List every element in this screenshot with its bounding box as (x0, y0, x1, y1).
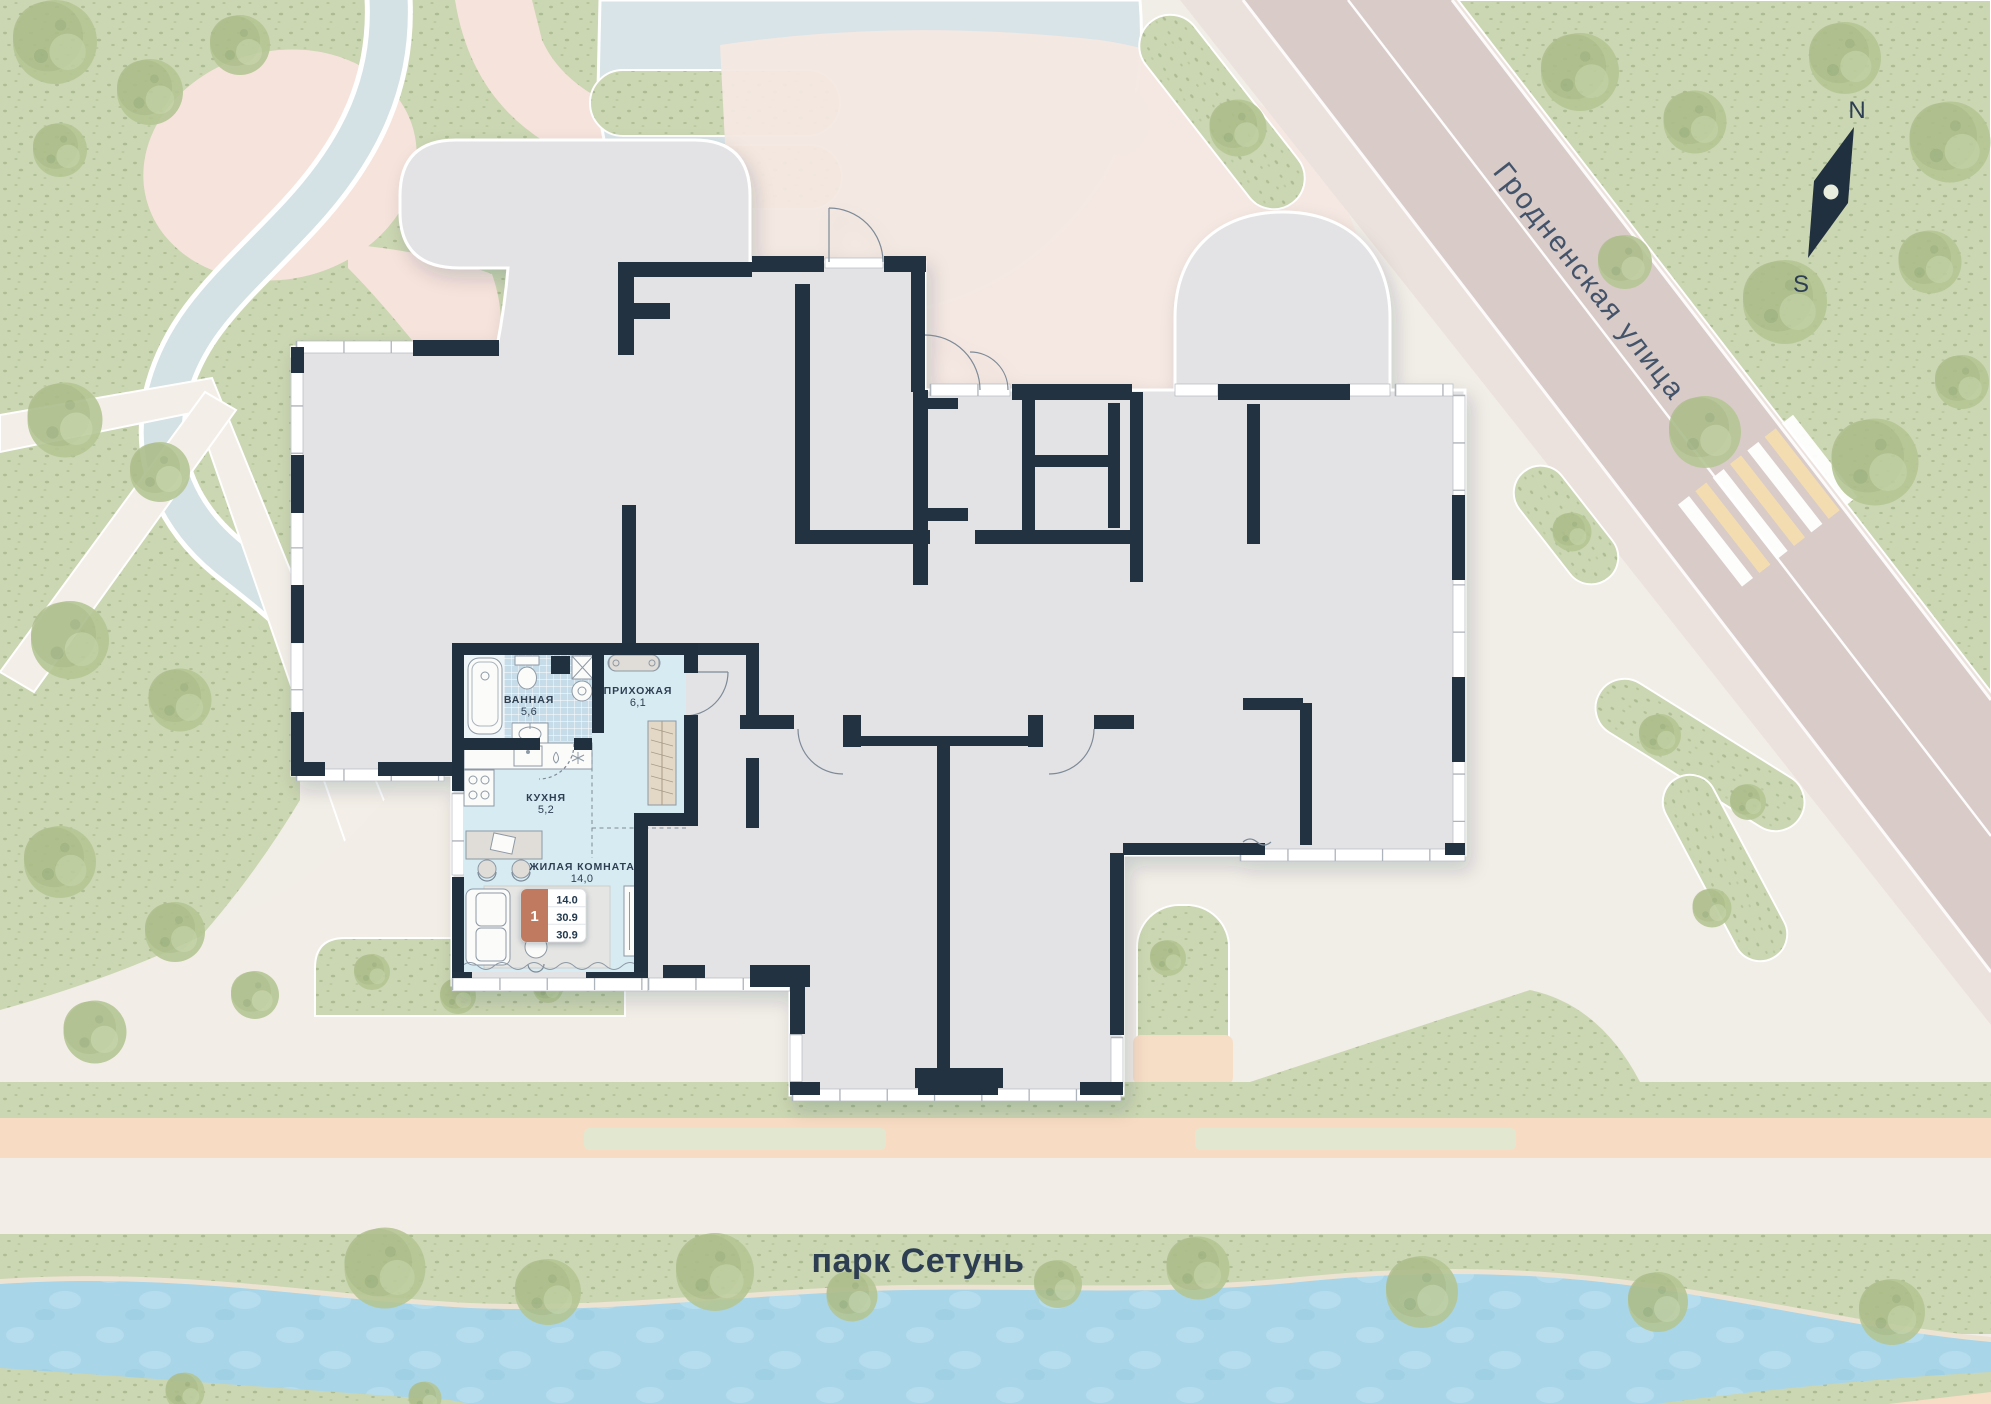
washer-icon (572, 656, 593, 701)
bike-lane (0, 1118, 1991, 1158)
bench-icon (608, 655, 660, 671)
room-label-hallway: ПРИХОЖАЯ (604, 685, 673, 697)
site-plan: ВАННАЯ 5,6 ПРИХОЖАЯ 6,1 КУХНЯ 5,2 ЖИЛАЯ … (0, 0, 1991, 1404)
stove-icon (464, 770, 494, 806)
toilet-icon (515, 656, 539, 689)
compass-south-label: S (1793, 271, 1809, 298)
room-area-bathroom: 5,6 (521, 706, 537, 718)
room-area-living: 14,0 (571, 873, 594, 885)
bike-lane-green-1 (584, 1128, 886, 1150)
badge-living-area: 14.0 (556, 895, 577, 907)
room-label-bathroom: ВАННАЯ (504, 694, 554, 706)
badge-total-area: 30.9 (556, 930, 577, 942)
shaft (551, 656, 570, 674)
room-label-kitchen: КУХНЯ (526, 792, 566, 804)
peach-patch (1133, 1035, 1233, 1085)
wardrobe-icon (648, 721, 676, 805)
badge-rooms-count: 1 (530, 908, 538, 925)
sofa-icon (466, 889, 510, 965)
site-plan-canvas: ВАННАЯ 5,6 ПРИХОЖАЯ 6,1 КУХНЯ 5,2 ЖИЛАЯ … (0, 0, 1991, 1404)
room-label-living: ЖИЛАЯ КОМНАТА (528, 861, 634, 873)
area-badge[interactable]: 1 14.0 30.9 30.9 (521, 889, 586, 942)
room-area-kitchen: 5,2 (538, 804, 554, 816)
badge-area-2: 30.9 (556, 912, 577, 924)
tv-console-icon (624, 886, 635, 956)
bike-lane-green-2 (1195, 1128, 1516, 1150)
park-label: парк Сетунь (811, 1242, 1024, 1280)
bathtub-icon (468, 658, 502, 734)
compass-north-label: N (1848, 97, 1865, 124)
room-area-hallway: 6,1 (630, 697, 646, 709)
